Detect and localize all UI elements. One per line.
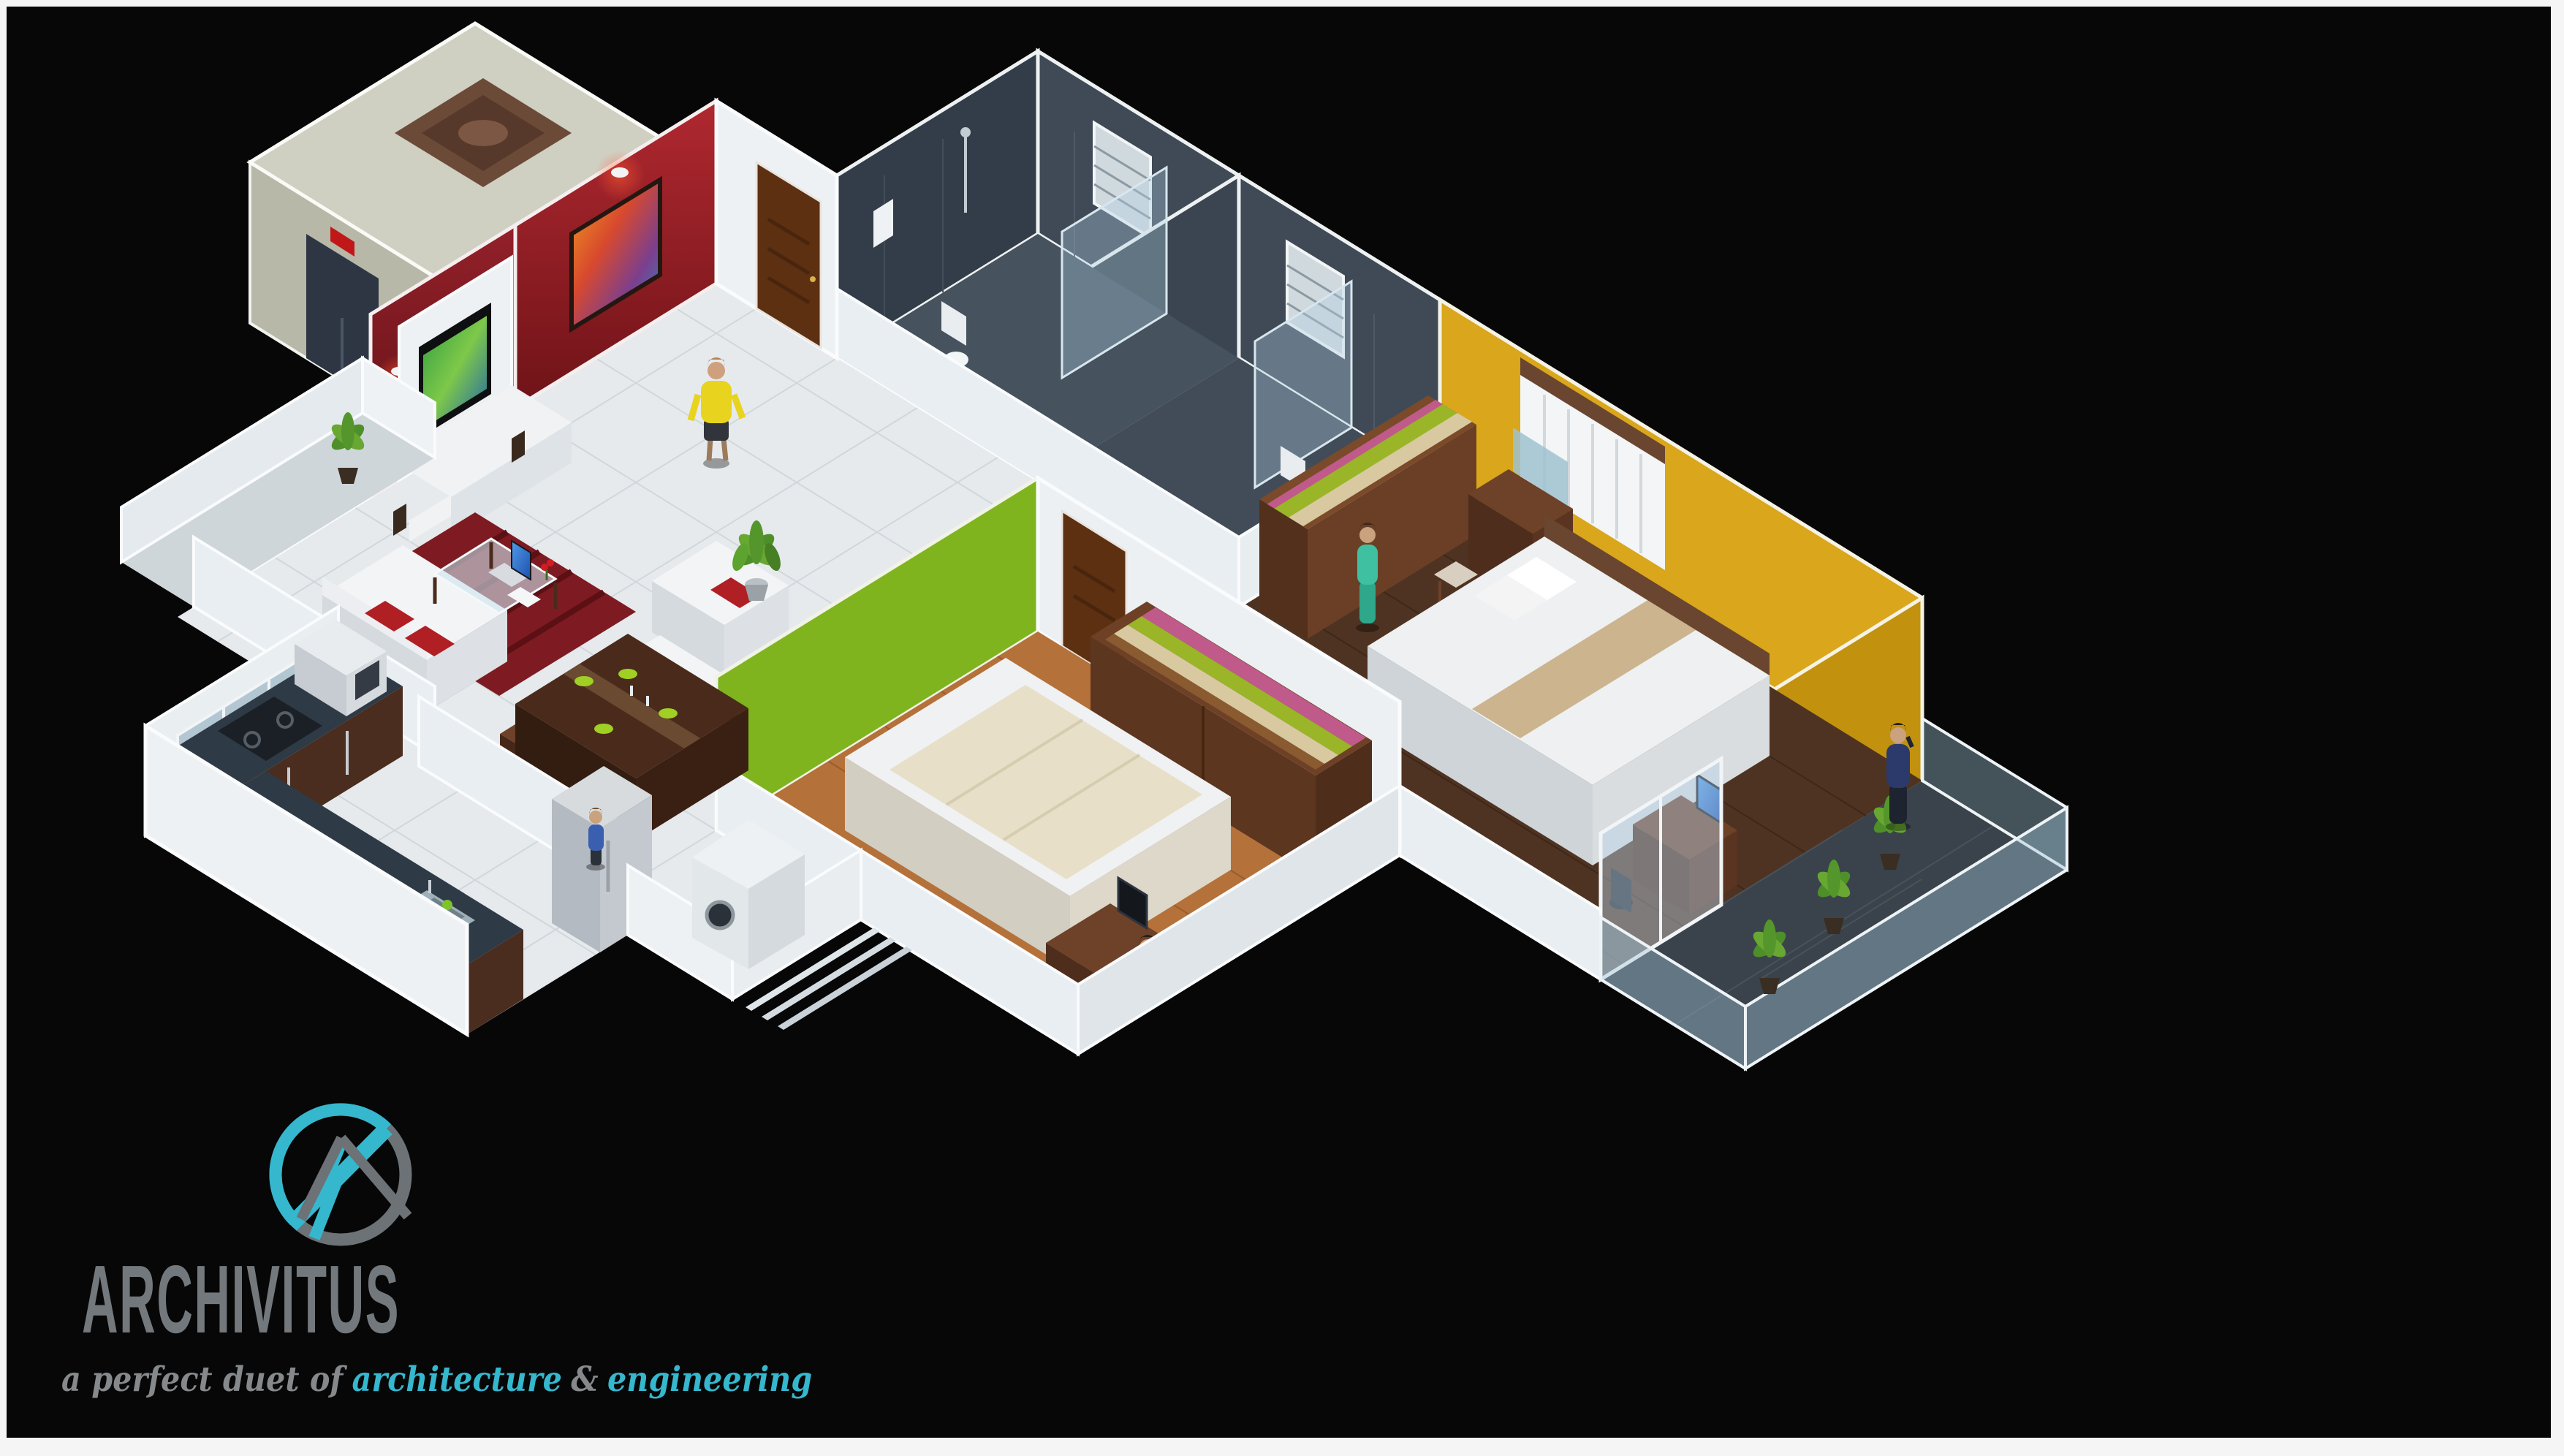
logo-block: ARCHIVITUS a perfect duet ofarchitecture…	[82, 1251, 694, 1348]
green-plate	[659, 708, 678, 718]
green-plate	[574, 676, 593, 686]
tagline-word2: engineering	[607, 1360, 812, 1400]
tagline-prefix: a perfect duet of	[61, 1360, 343, 1400]
wall-lamp	[611, 167, 629, 178]
logo-wordmark: ARCHIVITUS	[82, 1251, 400, 1348]
tagline-ampersand: &	[571, 1360, 598, 1400]
green-plate	[594, 724, 613, 734]
logo-mark	[276, 1110, 408, 1240]
logo-tagline: a perfect duet ofarchitecture&engineerin…	[61, 1360, 821, 1400]
poster-stage: ARCHIVITUS a perfect duet ofarchitecture…	[0, 0, 2564, 1456]
green-plate	[618, 669, 637, 679]
apartment-3d-render	[0, 0, 2564, 1456]
tagline-word1: architecture	[352, 1360, 562, 1400]
